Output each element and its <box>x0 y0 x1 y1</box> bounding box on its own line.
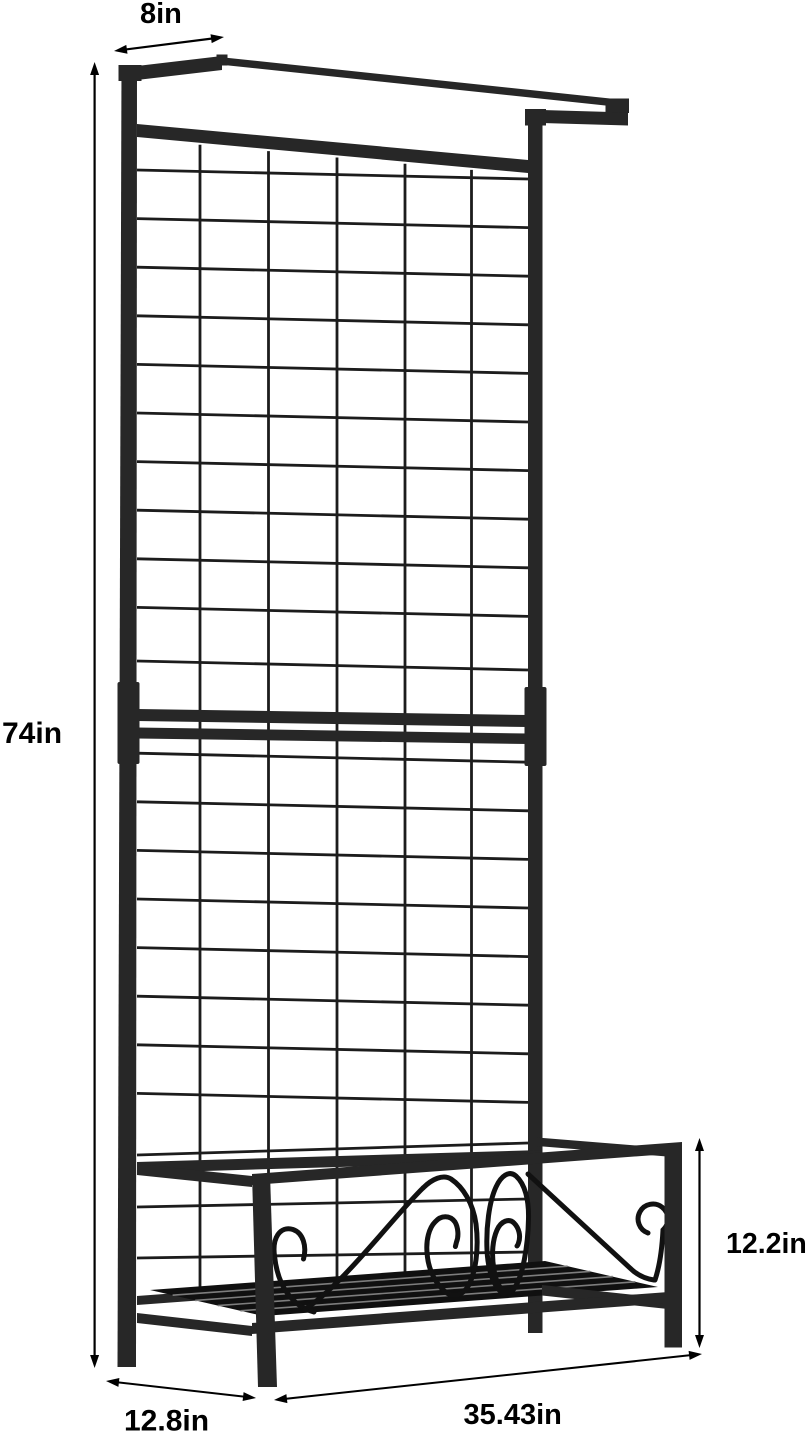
svg-text:35.43in: 35.43in <box>464 1399 562 1431</box>
svg-text:12.2in: 12.2in <box>726 1228 807 1260</box>
svg-text:8in: 8in <box>140 0 182 30</box>
svg-text:74in: 74in <box>2 717 62 750</box>
svg-text:12.8in: 12.8in <box>124 1405 209 1438</box>
